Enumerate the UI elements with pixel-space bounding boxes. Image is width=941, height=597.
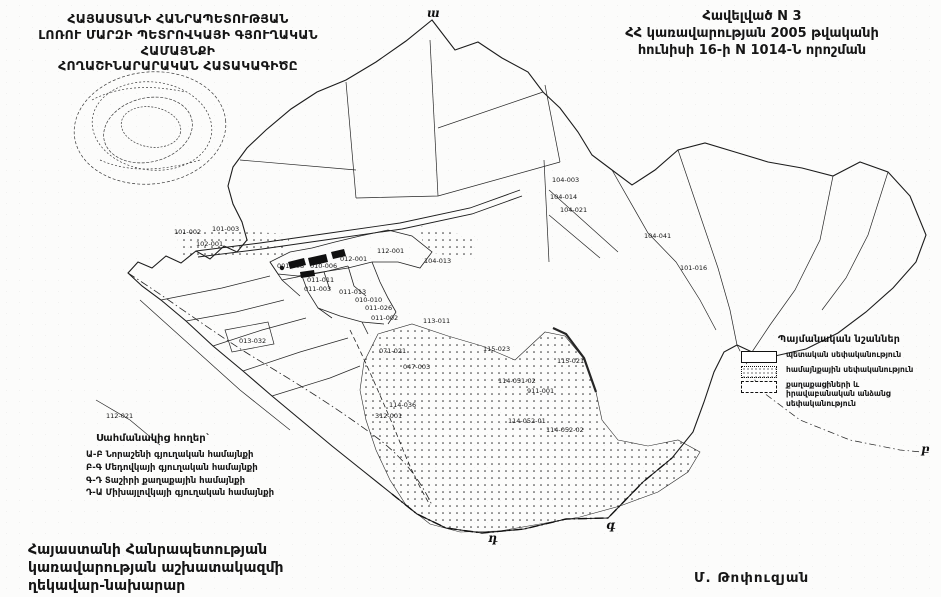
parcel-label: 101-003 [212,226,239,233]
boundary-point-letter: գ [606,518,615,532]
adjacent-land-item: Ա-Բ Նորաշենի գյուղական համայնքի [86,449,326,462]
parcel-label: 114-036 [389,402,416,409]
parcel-label: 012-001 [340,256,367,263]
decree-line: հունիսի 16-ի N 1014-Ն որոշման [592,43,912,60]
legend-item-state: պետական սեփականություն [741,350,937,363]
decree-line: ՀՀ կառավարության 2005 թվականի [592,26,912,43]
parcel-label: 010-006 [310,263,337,270]
parcel-label: 047-003 [403,364,430,371]
parcel-label: 104-013 [424,258,451,265]
page-title: ՀԱՅԱՍՏԱՆԻ ՀԱՆՐԱՊԵՏՈՒԹՅԱՆ ԼՈՌՈՒ ՄԱՐԶԻ ՊԵՏ… [8,11,348,74]
legend: Պայմանական նշաններ պետական սեփականությու… [741,334,937,410]
parcel-label: 102-001 [196,241,223,248]
title-line: ՀԱՅԱՍՏԱՆԻ ՀԱՆՐԱՊԵՏՈՒԹՅԱՆ [8,11,348,27]
parcel-label: 114-052-02 [546,427,584,434]
adjacent-land-item: Բ-Գ Մեդովկայի գյուղական համայնքի [86,462,326,475]
solid-box-icon [741,351,777,363]
parcel-label: 112-021 [106,413,133,420]
adjacent-lands-list: Սահմանակից հողեր` Ա-Բ Նորաշենի գյուղական… [86,433,326,500]
contour-scribble [69,64,232,191]
parcel-label: 312-001 [375,413,402,420]
scanned-map-sheet: { "title": { "lines": [ "ՀԱՅԱՍՏԱՆԻ ՀԱՆՐԱ… [0,0,941,597]
parcel-label: 911-001 [527,388,554,395]
parcel-label: 101-002 [174,229,201,236]
legend-header: Պայմանական նշաններ [741,334,937,345]
title-line: ՀՈՂԱՇԻՆԱՐԱՐԱԿԱՆ ՀԱՏԱԿԱԳԻԾԸ [8,58,348,74]
legend-item-label: համայնքային սեփականություն [786,365,928,374]
dotted-box-icon [741,366,777,378]
dashed-box-icon [741,381,777,393]
signatory-title-line: Հայաստանի Հանրապետության [28,541,284,559]
title-line: ԼՈՌՈՒ ՄԱՐԶԻ ՊԵՏՐՈՎԿԱՅԻ ԳՅՈՒՂԱԿԱՆ ՀԱՄԱՅՆՔ… [8,27,348,59]
parcel-label: 011-002 [371,315,398,322]
stippled-strip-east [420,226,478,258]
parcel-label: 071-021 [379,348,406,355]
parcel-label: 011-003 [304,286,331,293]
adjacent-lands-header: Սահմանակից հողեր` [86,433,326,444]
signature-name: Մ. Թոփուզյան [694,570,809,586]
legend-item-community: համայնքային սեփականություն [741,365,937,378]
map-linework [0,0,941,597]
decree-reference: Հավելված N 3 ՀՀ կառավարության 2005 թվակա… [592,9,912,60]
adjacent-land-item: Գ-Դ Տաշիրի քաղաքային համայնքի [86,475,326,488]
signatory-title: Հայաստանի Հանրապետության կառավարության ա… [28,541,284,596]
parcel-label: 011-026 [365,305,392,312]
parcel-label: 104-021 [560,207,587,214]
boundary-point-letter: բ [921,442,929,456]
boundary-point-letter: ա [427,6,440,20]
parcel-label: 115-021 [557,358,584,365]
parcel-label: 114-052-01 [508,418,546,425]
parcel-label: 104-003 [552,177,579,184]
parcel-label: 104-014 [550,194,577,201]
parcel-label: 113-011 [423,318,450,325]
adjacent-land-item: Դ-Ա Միխայլովկայի գյուղական համայնքի [86,487,326,500]
signatory-title-line: կառավարության աշխատակազմի [28,559,284,577]
parcel-label: 011-011 [307,277,334,284]
parcel-label: 101-016 [680,265,707,272]
legend-item-label: պետական սեփականություն [786,350,928,359]
legend-item-private: քաղաքացիների և իրավաբանական անձանց սեփակ… [741,380,937,408]
boundary-point-letter: դ [488,531,498,545]
parcel-label: 104-041 [644,233,671,240]
decree-line: Հավելված N 3 [592,9,912,26]
parcel-label: 011-013 [339,289,366,296]
parcel-label: 112-001 [377,248,404,255]
signatory-title-line: ղեկավար-նախարար [28,577,284,595]
parcel-label: 013-032 [239,338,266,345]
parcel-label: 010-010 [355,297,382,304]
legend-item-label: քաղաքացիների և իրավաբանական անձանց սեփակ… [786,380,928,408]
parcel-label: 114-051-02 [498,378,536,385]
parcel-label: 115-023 [483,346,510,353]
parcel-label: 001-008 [277,263,304,270]
stippled-region-south [360,324,700,532]
